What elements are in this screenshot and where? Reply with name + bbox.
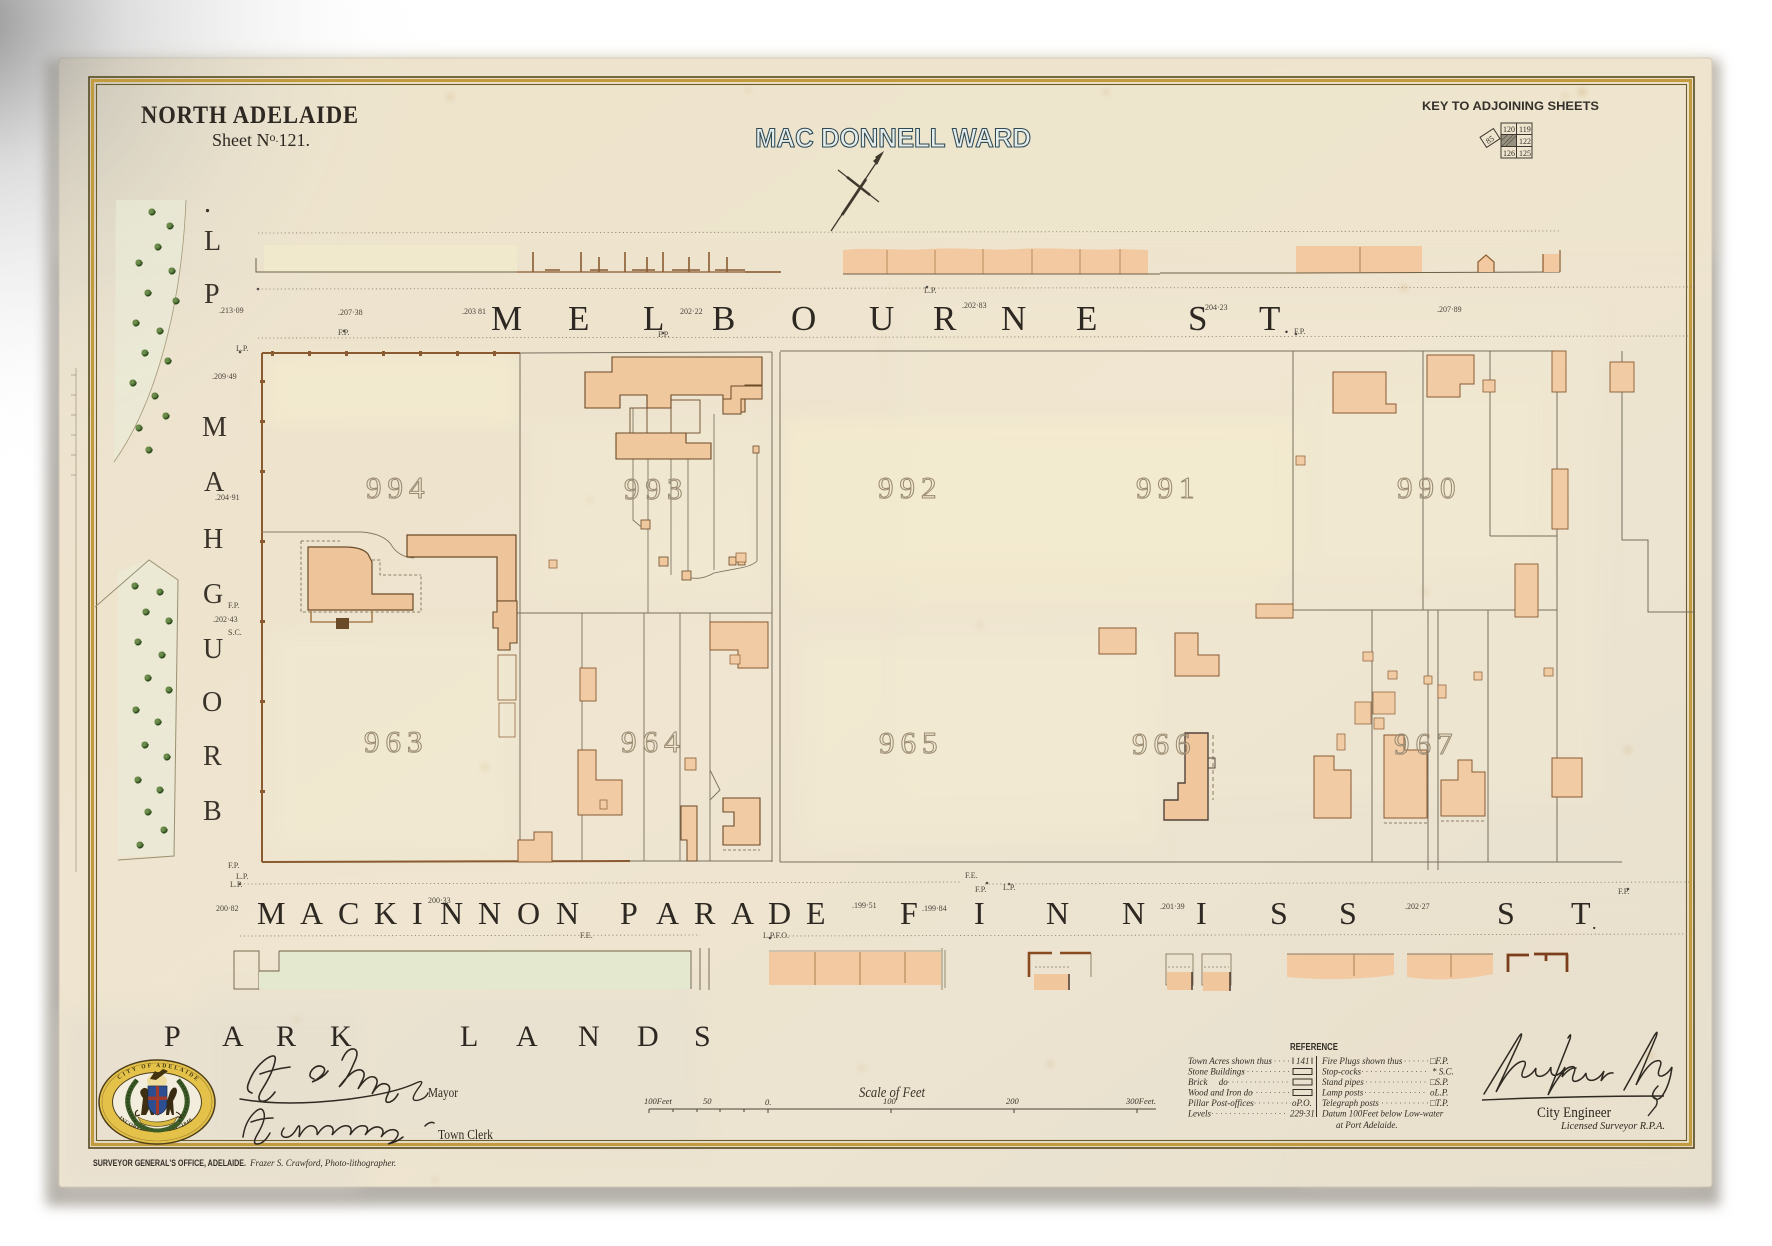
svg-text:NORTH ADELAIDE: NORTH ADELAIDE	[141, 102, 359, 129]
svg-text:I: I	[1196, 895, 1207, 931]
svg-text:MAC DONNELL WARD: MAC DONNELL WARD	[755, 123, 1031, 153]
svg-text:Mayor: Mayor	[428, 1086, 458, 1101]
svg-text:L: L	[204, 226, 221, 257]
svg-text:991: 991	[1136, 470, 1201, 505]
svg-text:F.P.: F.P.	[228, 601, 239, 610]
svg-text:967: 967	[1394, 726, 1459, 761]
svg-text:M: M	[202, 412, 227, 443]
svg-text:Stop-cocks: Stop-cocks	[1322, 1067, 1361, 1077]
svg-text:K: K	[374, 895, 397, 931]
svg-text:E: E	[806, 895, 826, 931]
svg-text:G: G	[203, 579, 223, 610]
svg-text:F.P.: F.P.	[228, 861, 239, 870]
svg-text:N: N	[578, 1020, 600, 1053]
svg-text:A: A	[222, 1020, 244, 1053]
svg-text:M: M	[491, 299, 522, 338]
svg-text:C: C	[338, 895, 359, 931]
svg-text:oL.P.: oL.P.	[1430, 1088, 1448, 1098]
svg-text:L.P.: L.P.	[236, 344, 248, 353]
svg-text:0.: 0.	[765, 1097, 771, 1107]
svg-text:.: .	[1592, 913, 1597, 933]
svg-text:REFERENCE: REFERENCE	[1290, 1042, 1338, 1053]
svg-text:O: O	[517, 895, 540, 931]
svg-text:966: 966	[1132, 726, 1197, 761]
svg-text:.202·83: .202·83	[962, 301, 987, 310]
svg-text:H: H	[203, 524, 223, 555]
svg-text:F.P.: F.P.	[658, 330, 669, 339]
svg-text:A: A	[516, 1020, 538, 1053]
svg-text:B: B	[203, 796, 222, 827]
svg-text:100: 100	[883, 1096, 897, 1106]
svg-text:N: N	[1001, 299, 1026, 338]
svg-text:P: P	[204, 279, 220, 310]
svg-text:City Engineer: City Engineer	[1537, 1105, 1611, 1121]
svg-text:U: U	[203, 634, 223, 665]
svg-text:202·22: 202·22	[680, 307, 703, 316]
svg-text:T: T	[1259, 299, 1280, 338]
svg-text:S.C.: S.C.	[228, 628, 242, 637]
svg-text:993: 993	[624, 471, 689, 506]
svg-text:at Port Adelaide.: at Port Adelaide.	[1336, 1120, 1398, 1130]
svg-text:S: S	[1270, 895, 1288, 931]
svg-text:L: L	[460, 1020, 478, 1053]
svg-text:990: 990	[1397, 470, 1462, 505]
svg-text:□F.P.: □F.P.	[1430, 1056, 1449, 1066]
svg-text:.202·27: .202·27	[1405, 902, 1430, 911]
svg-text:* S.C.: * S.C.	[1432, 1067, 1454, 1077]
svg-text:Wood and Iron do: Wood and Iron do	[1188, 1088, 1253, 1098]
svg-text:KEY TO ADJOINING SHEETS: KEY TO ADJOINING SHEETS	[1422, 101, 1599, 113]
svg-text:F.P.: F.P.	[338, 328, 349, 337]
svg-text:A: A	[731, 895, 754, 931]
svg-text:Licensed Surveyor R.P.A.: Licensed Surveyor R.P.A.	[1560, 1121, 1665, 1132]
svg-text:F.E.: F.E.	[965, 871, 978, 880]
svg-text:.213·09: .213·09	[219, 306, 244, 315]
svg-text:.209·49: .209·49	[212, 372, 237, 381]
svg-text:N: N	[478, 895, 501, 931]
svg-text:Town Clerk: Town Clerk	[438, 1128, 493, 1143]
svg-text:I: I	[412, 895, 423, 931]
svg-text:R: R	[276, 1020, 296, 1053]
svg-text:□S.P.: □S.P.	[1430, 1077, 1449, 1087]
svg-text:Town Acres shown thus: Town Acres shown thus	[1188, 1056, 1272, 1066]
svg-text:.203 81: .203 81	[462, 307, 486, 316]
svg-text:Datum 100Feet below Low-water: Datum 100Feet below Low-water	[1321, 1109, 1444, 1119]
svg-text:B: B	[712, 299, 735, 338]
svg-text:N: N	[556, 895, 579, 931]
svg-text:300Feet.: 300Feet.	[1125, 1096, 1156, 1106]
svg-text:965: 965	[879, 725, 944, 760]
svg-text:122: 122	[1519, 137, 1531, 146]
svg-text:.201·39: .201·39	[1160, 902, 1185, 911]
svg-text:Sheet No.121.: Sheet No.121.	[212, 130, 310, 150]
svg-text:Stone Buildings: Stone Buildings	[1188, 1067, 1245, 1077]
svg-text:K: K	[330, 1020, 352, 1053]
svg-text:141: 141	[1296, 1056, 1310, 1066]
svg-text:Fire Plugs shown thus: Fire Plugs shown thus	[1321, 1056, 1403, 1066]
svg-text:A: A	[656, 895, 679, 931]
svg-text:U: U	[869, 299, 894, 338]
svg-text:F: F	[900, 895, 918, 931]
svg-text:N: N	[1122, 895, 1145, 931]
svg-text:T: T	[1571, 895, 1591, 931]
svg-text:994: 994	[366, 470, 431, 505]
svg-text:200·82: 200·82	[216, 904, 239, 913]
svg-text:F.P.: F.P.	[1294, 327, 1305, 336]
svg-text:.202·43: .202·43	[213, 615, 238, 624]
svg-text:S: S	[694, 1020, 711, 1053]
svg-text:SURVEYOR GENERAL'S OFFICE, ADE: SURVEYOR GENERAL'S OFFICE, ADELAIDE.	[93, 1158, 246, 1169]
svg-text:□T.P.: □T.P.	[1430, 1098, 1449, 1108]
svg-text:100Feet: 100Feet	[644, 1096, 672, 1106]
svg-text:I: I	[974, 895, 985, 931]
svg-text:S: S	[1497, 895, 1515, 931]
svg-text:R: R	[933, 299, 957, 338]
svg-text:O: O	[791, 299, 816, 338]
svg-text:N: N	[1046, 895, 1069, 931]
svg-text:M: M	[257, 895, 285, 931]
svg-text:.: .	[1284, 316, 1289, 338]
svg-text:50: 50	[703, 1096, 712, 1106]
svg-text:L.P.: L.P.	[924, 286, 936, 295]
svg-text:.207·89: .207·89	[1437, 305, 1462, 314]
svg-text:E: E	[568, 299, 589, 338]
svg-text:Brick do: Brick do	[1188, 1077, 1228, 1087]
svg-text:200: 200	[1006, 1096, 1020, 1106]
svg-text:.204·91: .204·91	[215, 493, 240, 502]
svg-text:R: R	[203, 741, 222, 772]
svg-text:Stand pipes: Stand pipes	[1322, 1077, 1364, 1087]
svg-text:Telegraph posts: Telegraph posts	[1322, 1098, 1379, 1108]
svg-text:Frazer S. Crawford, Photo-lith: Frazer S. Crawford, Photo-lithographer.	[249, 1158, 396, 1168]
svg-text:200·33: 200·33	[428, 896, 451, 905]
svg-text:964: 964	[621, 724, 686, 759]
svg-text:125: 125	[1519, 149, 1531, 158]
svg-text:.199·51: .199·51	[852, 901, 877, 910]
svg-text:126: 126	[1503, 149, 1515, 158]
svg-text:A: A	[300, 895, 323, 931]
svg-text:Levels: Levels	[1187, 1109, 1211, 1119]
svg-text:E: E	[1076, 299, 1097, 338]
svg-text:S: S	[1339, 895, 1357, 931]
svg-text:O: O	[202, 687, 222, 718]
svg-text:963: 963	[364, 724, 429, 759]
svg-text:L.P.: L.P.	[236, 872, 248, 881]
svg-text:.: .	[204, 188, 211, 219]
svg-text:D: D	[768, 895, 791, 931]
svg-text:oP.O.: oP.O.	[1292, 1098, 1312, 1108]
svg-text:204·23: 204·23	[1205, 303, 1228, 312]
svg-text:D: D	[637, 1020, 659, 1053]
svg-text:L.P.F.O.: L.P.F.O.	[763, 931, 789, 940]
svg-text:119: 119	[1519, 125, 1531, 134]
svg-text:Pillar Post-offices: Pillar Post-offices	[1187, 1098, 1254, 1108]
svg-text:R: R	[694, 895, 716, 931]
svg-text:F.P.: F.P.	[1618, 887, 1629, 896]
svg-text:F.E.: F.E.	[580, 931, 593, 940]
svg-text:992: 992	[878, 470, 943, 505]
svg-text:P: P	[620, 895, 638, 931]
svg-text:F.P.: F.P.	[975, 885, 986, 894]
svg-text:P: P	[164, 1020, 181, 1053]
svg-text:120: 120	[1503, 125, 1515, 134]
svg-text:229·31: 229·31	[1290, 1109, 1315, 1119]
svg-text:.199·84: .199·84	[922, 904, 947, 913]
svg-text:Lamp posts: Lamp posts	[1321, 1088, 1364, 1098]
svg-text:.207·38: .207·38	[338, 308, 363, 317]
svg-text:L.P.: L.P.	[1003, 883, 1015, 892]
